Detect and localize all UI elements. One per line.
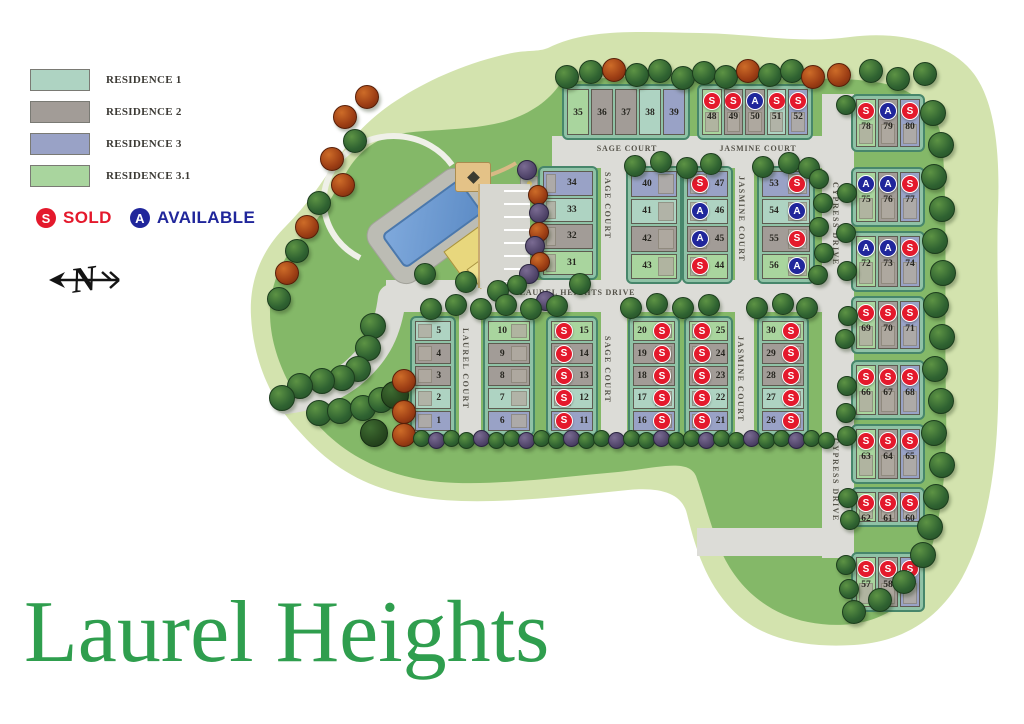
tree-icon xyxy=(746,297,768,319)
lot-29: 29S xyxy=(762,343,804,363)
legend-label: RESIDENCE 3.1 xyxy=(106,170,191,182)
tree-icon xyxy=(913,62,937,86)
tree-icon xyxy=(443,430,460,447)
lot-number: 57 xyxy=(857,580,875,590)
lot-1: 1 xyxy=(415,411,451,431)
tree-icon xyxy=(548,432,565,449)
lot-number: 53 xyxy=(763,179,785,189)
tree-icon xyxy=(752,156,774,178)
lot-48: S48 xyxy=(702,89,722,135)
lot-60: S60 xyxy=(900,492,920,522)
lot-number: 31 xyxy=(544,258,592,268)
lot-50: A50 xyxy=(745,89,765,135)
lot-25: S25 xyxy=(689,321,728,341)
tree-icon xyxy=(683,430,700,447)
site-plan-page: RESIDENCE 1RESIDENCE 2RESIDENCE 3RESIDEN… xyxy=(0,0,1024,724)
status-badge-sold: S xyxy=(901,368,919,386)
tree-icon xyxy=(518,432,535,449)
status-badge-available: A xyxy=(746,92,764,110)
status-badge-available: A xyxy=(857,175,875,193)
lot-30: 30S xyxy=(762,321,804,341)
lot-66: S66 xyxy=(856,365,876,415)
tree-icon xyxy=(868,588,892,612)
lot-49: S49 xyxy=(724,89,744,135)
lot-79: A79 xyxy=(878,99,898,147)
lot-number: 75 xyxy=(857,195,875,205)
street-label-sage-court: SAGE COURT xyxy=(603,172,612,256)
lot-44: S44 xyxy=(687,254,728,280)
status-badge-available: A xyxy=(879,239,897,257)
lot-number: 68 xyxy=(901,388,919,398)
sold-label: SOLD xyxy=(63,208,112,228)
lot-64: S64 xyxy=(878,429,898,479)
tree-icon xyxy=(470,298,492,320)
tree-icon xyxy=(473,430,490,447)
legend-swatch xyxy=(30,101,90,123)
lot-54: 54A xyxy=(762,199,810,225)
lot-number: 5 xyxy=(416,326,450,336)
tree-icon xyxy=(788,432,805,449)
block-b35: 3536373839 xyxy=(562,84,690,140)
legend-item: RESIDENCE 2 xyxy=(30,96,191,128)
status-badge-sold: S xyxy=(555,367,573,385)
lot-number: 42 xyxy=(632,234,676,244)
tree-icon xyxy=(488,432,505,449)
status-badge-sold: S xyxy=(857,102,875,120)
lot-number: 15 xyxy=(576,326,592,336)
lot-37: 37 xyxy=(615,89,637,135)
lot-number: 2 xyxy=(416,393,450,403)
tree-icon xyxy=(692,61,716,85)
lot-number: 50 xyxy=(746,112,764,122)
tree-icon xyxy=(713,430,730,447)
tree-icon xyxy=(455,271,477,293)
tree-icon xyxy=(343,129,367,153)
lot-number: 47 xyxy=(712,179,727,189)
block-b72: A72A73S74 xyxy=(851,231,925,292)
lot-61: S61 xyxy=(878,492,898,522)
tree-icon xyxy=(838,306,858,326)
lot-number: 80 xyxy=(901,122,919,132)
tree-icon xyxy=(503,430,520,447)
tree-icon xyxy=(413,430,430,447)
lot-number: 44 xyxy=(712,261,727,271)
tree-icon xyxy=(921,420,947,446)
tree-icon xyxy=(650,151,672,173)
lot-18: 18S xyxy=(633,366,675,386)
lot-number: 60 xyxy=(901,514,919,522)
street-label-jasmine-court: JASMINE COURT xyxy=(737,176,746,268)
lot-10: 10 xyxy=(488,321,530,341)
status-badge-sold: S xyxy=(653,367,671,385)
tree-icon xyxy=(333,105,357,129)
lot-69: S69 xyxy=(856,301,876,349)
tree-icon xyxy=(803,430,820,447)
tree-icon xyxy=(818,432,835,449)
tree-icon xyxy=(608,432,625,449)
lot-number: 61 xyxy=(879,514,897,522)
status-badge-sold: S xyxy=(693,412,711,430)
status-badge-sold: S xyxy=(857,368,875,386)
legend-swatch xyxy=(30,165,90,187)
legend: RESIDENCE 1RESIDENCE 2RESIDENCE 3RESIDEN… xyxy=(30,64,191,192)
status-badge-sold: S xyxy=(768,92,786,110)
lot-75: A75 xyxy=(856,172,876,222)
lot-number: 67 xyxy=(879,388,897,398)
lot-39: 39 xyxy=(663,89,685,135)
lot-number: 48 xyxy=(703,112,721,122)
lot-number: 79 xyxy=(879,122,897,132)
block-b66: S66S67S68 xyxy=(851,360,925,420)
status-badge-sold: S xyxy=(788,230,806,248)
status-badge-available: A xyxy=(879,175,897,193)
legend-label: RESIDENCE 1 xyxy=(106,74,182,86)
lot-12: S12 xyxy=(551,388,593,408)
status-badge-sold: S xyxy=(857,304,875,322)
tree-icon xyxy=(736,59,760,83)
lot-number: 25 xyxy=(714,326,727,336)
lot-43: 43 xyxy=(631,254,677,280)
lot-number: 39 xyxy=(664,108,684,118)
sold-badge-icon: S xyxy=(36,208,56,228)
status-badge-available: A xyxy=(857,239,875,257)
tree-icon xyxy=(922,356,948,382)
lot-16: 16S xyxy=(633,411,675,431)
lot-number: 20 xyxy=(634,326,650,336)
tree-icon xyxy=(836,555,856,575)
tree-icon xyxy=(922,228,948,254)
lot-78: S78 xyxy=(856,99,876,147)
tree-icon xyxy=(929,196,955,222)
lot-number: 45 xyxy=(712,234,727,244)
tree-icon xyxy=(930,260,956,286)
lot-number: 76 xyxy=(879,195,897,205)
block-b40: 40414243 xyxy=(626,166,682,284)
tree-icon xyxy=(620,297,642,319)
tree-icon xyxy=(773,430,790,447)
tree-icon xyxy=(269,385,295,411)
street-label-laurel-court: LAUREL COURT xyxy=(461,328,470,416)
tree-icon xyxy=(458,432,475,449)
tree-icon xyxy=(533,430,550,447)
tree-icon xyxy=(801,65,825,89)
lot-number: 22 xyxy=(714,393,727,403)
status-badge-sold: S xyxy=(703,92,721,110)
status-badge-sold: S xyxy=(901,102,919,120)
available-badge-icon: A xyxy=(130,208,150,228)
status-badge-sold: S xyxy=(653,345,671,363)
tree-icon xyxy=(676,157,698,179)
tree-icon xyxy=(758,432,775,449)
tree-icon xyxy=(392,369,416,393)
tree-icon xyxy=(814,243,834,263)
lot-27: 27S xyxy=(762,388,804,408)
tree-icon xyxy=(563,430,580,447)
lot-70: S70 xyxy=(878,301,898,349)
tree-icon xyxy=(929,452,955,478)
tree-icon xyxy=(295,215,319,239)
tree-icon xyxy=(420,298,442,320)
lot-number: 74 xyxy=(901,259,919,269)
lot-number: 16 xyxy=(634,416,650,426)
lot-number: 56 xyxy=(763,261,785,271)
lot-number: 32 xyxy=(544,231,592,241)
tree-icon xyxy=(758,63,782,87)
lot-number: 49 xyxy=(725,112,743,122)
hut-roof-icon xyxy=(467,171,480,184)
status-badge-sold: S xyxy=(879,304,897,322)
lot-number: 73 xyxy=(879,259,897,269)
tree-icon xyxy=(327,398,353,424)
tree-icon xyxy=(917,514,943,540)
lot-number: 19 xyxy=(634,349,650,359)
block-b75: A75A76S77 xyxy=(851,167,925,227)
status-badge-sold: S xyxy=(782,412,800,430)
lot-number: 72 xyxy=(857,259,875,269)
lot-number: 7 xyxy=(489,393,529,403)
lot-55: 55S xyxy=(762,226,810,252)
block-b6: 109876 xyxy=(483,316,535,436)
lot-76: A76 xyxy=(878,172,898,222)
tree-icon xyxy=(555,65,579,89)
lot-7: 7 xyxy=(488,388,530,408)
tree-icon xyxy=(840,510,860,530)
lot-32: 32 xyxy=(543,224,593,249)
tree-icon xyxy=(578,432,595,449)
block-b21: S25S24S23S22S21 xyxy=(684,316,733,436)
lot-4: 4 xyxy=(415,343,451,363)
tree-icon xyxy=(772,293,794,315)
status-badge-sold: S xyxy=(693,345,711,363)
lot-number: 63 xyxy=(857,452,875,462)
tree-icon xyxy=(728,432,745,449)
lot-52: S52 xyxy=(788,89,808,135)
lot-number: 12 xyxy=(576,393,592,403)
tree-icon xyxy=(428,432,445,449)
status-badge-sold: S xyxy=(653,412,671,430)
lot-number: 24 xyxy=(714,349,727,359)
tree-icon xyxy=(809,169,829,189)
status-badge-sold: S xyxy=(693,322,711,340)
status-badge-available: A xyxy=(691,230,709,248)
tree-icon xyxy=(529,203,549,223)
lot-22: S22 xyxy=(689,388,728,408)
lot-21: S21 xyxy=(689,411,728,431)
tree-icon xyxy=(929,324,955,350)
status-badge-sold: S xyxy=(879,432,897,450)
lot-number: 13 xyxy=(576,371,592,381)
tree-icon xyxy=(546,295,568,317)
tree-icon xyxy=(331,173,355,197)
status-badge-sold: S xyxy=(782,367,800,385)
lot-number: 70 xyxy=(879,324,897,334)
lot-73: A73 xyxy=(878,236,898,287)
lot-15: S15 xyxy=(551,321,593,341)
tree-icon xyxy=(837,183,857,203)
lot-80: S80 xyxy=(900,99,920,147)
lot-number: 55 xyxy=(763,234,785,244)
lot-number: 77 xyxy=(901,195,919,205)
tree-icon xyxy=(528,185,548,205)
tree-icon xyxy=(838,488,858,508)
legend-swatch xyxy=(30,133,90,155)
tree-icon xyxy=(700,153,722,175)
road-cypress-bottom xyxy=(697,528,854,556)
status-badge-sold: S xyxy=(901,175,919,193)
tree-icon xyxy=(923,484,949,510)
block-b16: 20S19S18S17S16S xyxy=(628,316,680,436)
status-badge-sold: S xyxy=(555,345,573,363)
lot-45: A45 xyxy=(687,226,728,252)
street-label-cypress-drive: CYPRESS DRIVE xyxy=(831,438,840,530)
tree-icon xyxy=(842,600,866,624)
lot-26: 26S xyxy=(762,411,804,431)
status-badge-sold: S xyxy=(901,432,919,450)
tree-icon xyxy=(839,579,859,599)
tree-icon xyxy=(392,400,416,424)
status-badge-sold: S xyxy=(693,389,711,407)
status-badge-sold: S xyxy=(789,92,807,110)
tree-icon xyxy=(648,59,672,83)
lot-17: 17S xyxy=(633,388,675,408)
lot-65: S65 xyxy=(900,429,920,479)
lot-number: 17 xyxy=(634,393,650,403)
tree-icon xyxy=(910,542,936,568)
status-badge-sold: S xyxy=(879,368,897,386)
status-badge-sold: S xyxy=(782,345,800,363)
status-badge-sold: S xyxy=(691,175,709,193)
lot-number: 71 xyxy=(901,324,919,334)
lot-number: 37 xyxy=(616,108,636,118)
status-badge-available: A xyxy=(879,102,897,120)
lot-74: S74 xyxy=(900,236,920,287)
tree-icon xyxy=(309,368,335,394)
lot-number: 54 xyxy=(763,206,785,216)
status-badge-sold: S xyxy=(879,494,897,512)
lot-9: 9 xyxy=(488,343,530,363)
lot-number: 28 xyxy=(763,371,779,381)
tree-icon xyxy=(414,263,436,285)
block-b69: S69S70S71 xyxy=(851,296,925,354)
lot-5: 5 xyxy=(415,321,451,341)
lot-51: S51 xyxy=(767,89,787,135)
lot-20: 20S xyxy=(633,321,675,341)
status-legend: S SOLD A AVAILABLE xyxy=(36,208,273,228)
tree-icon xyxy=(837,261,857,281)
tree-icon xyxy=(923,292,949,318)
tree-icon xyxy=(698,432,715,449)
tree-icon xyxy=(520,298,542,320)
tree-icon xyxy=(495,294,517,316)
tree-icon xyxy=(835,329,855,349)
lot-number: 52 xyxy=(789,112,807,122)
legend-item: RESIDENCE 3.1 xyxy=(30,160,191,192)
lot-number: 33 xyxy=(544,205,592,215)
lot-35: 35 xyxy=(567,89,589,135)
lot-number: 9 xyxy=(489,349,529,359)
tree-icon xyxy=(623,430,640,447)
tree-icon xyxy=(837,426,857,446)
tree-icon xyxy=(836,95,856,115)
tree-icon xyxy=(813,193,833,213)
tree-icon xyxy=(646,293,668,315)
tree-icon xyxy=(928,388,954,414)
block-b44: S47A46A45S44 xyxy=(682,166,733,284)
lot-number: 21 xyxy=(714,416,727,426)
lot-77: S77 xyxy=(900,172,920,222)
lot-number: 6 xyxy=(489,416,529,426)
block-b63: S63S64S65 xyxy=(851,424,925,484)
street-label-sage-court: SAGE COURT xyxy=(592,144,662,153)
status-badge-sold: S xyxy=(555,412,573,430)
available-label: AVAILABLE xyxy=(157,208,255,228)
lot-number: 14 xyxy=(576,349,592,359)
svg-text:N: N xyxy=(67,257,101,301)
tree-icon xyxy=(809,217,829,237)
lot-number: 46 xyxy=(712,206,727,216)
lot-31: 31 xyxy=(543,251,593,276)
tree-icon xyxy=(307,191,331,215)
tree-icon xyxy=(836,403,856,423)
lot-2: 2 xyxy=(415,388,451,408)
tree-icon xyxy=(837,376,857,396)
tree-icon xyxy=(668,432,685,449)
lot-number: 18 xyxy=(634,371,650,381)
tree-icon xyxy=(593,430,610,447)
tree-icon xyxy=(920,100,946,126)
north-arrow-icon: N xyxy=(45,248,129,308)
lot-3: 3 xyxy=(415,366,451,386)
lot-42: 42 xyxy=(631,226,677,252)
lot-63: S63 xyxy=(856,429,876,479)
lot-number: 64 xyxy=(879,452,897,462)
block-b78: S78A79S80 xyxy=(851,94,925,152)
tree-icon xyxy=(778,152,800,174)
legend-item: RESIDENCE 3 xyxy=(30,128,191,160)
block-b48: S48S49A50S51S52 xyxy=(697,84,813,140)
tree-icon xyxy=(285,239,309,263)
tree-icon xyxy=(653,430,670,447)
lot-number: 30 xyxy=(763,326,779,336)
tree-icon xyxy=(796,297,818,319)
tree-icon xyxy=(625,63,649,87)
block-b11: S15S14S13S12S11 xyxy=(546,316,598,436)
status-badge-sold: S xyxy=(857,494,875,512)
tree-icon xyxy=(743,430,760,447)
tree-icon xyxy=(267,287,291,311)
tree-icon xyxy=(507,275,527,295)
tree-icon xyxy=(569,273,591,295)
lot-36: 36 xyxy=(591,89,613,135)
lot-number: 1 xyxy=(416,416,450,426)
lot-13: S13 xyxy=(551,366,593,386)
lot-number: 40 xyxy=(632,179,676,189)
tree-icon xyxy=(579,60,603,84)
lot-6: 6 xyxy=(488,411,530,431)
tree-icon xyxy=(638,432,655,449)
tree-icon xyxy=(624,155,646,177)
lot-68: S68 xyxy=(900,365,920,415)
lot-number: 69 xyxy=(857,324,875,334)
lot-number: 66 xyxy=(857,388,875,398)
block-b26: 30S29S28S27S26S xyxy=(757,316,809,436)
lot-number: 78 xyxy=(857,122,875,132)
project-title: Laurel Heights xyxy=(24,582,549,683)
tree-icon xyxy=(355,85,379,109)
lot-34: 34 xyxy=(543,171,593,196)
tree-icon xyxy=(602,58,626,82)
lot-56: 56A xyxy=(762,254,810,280)
